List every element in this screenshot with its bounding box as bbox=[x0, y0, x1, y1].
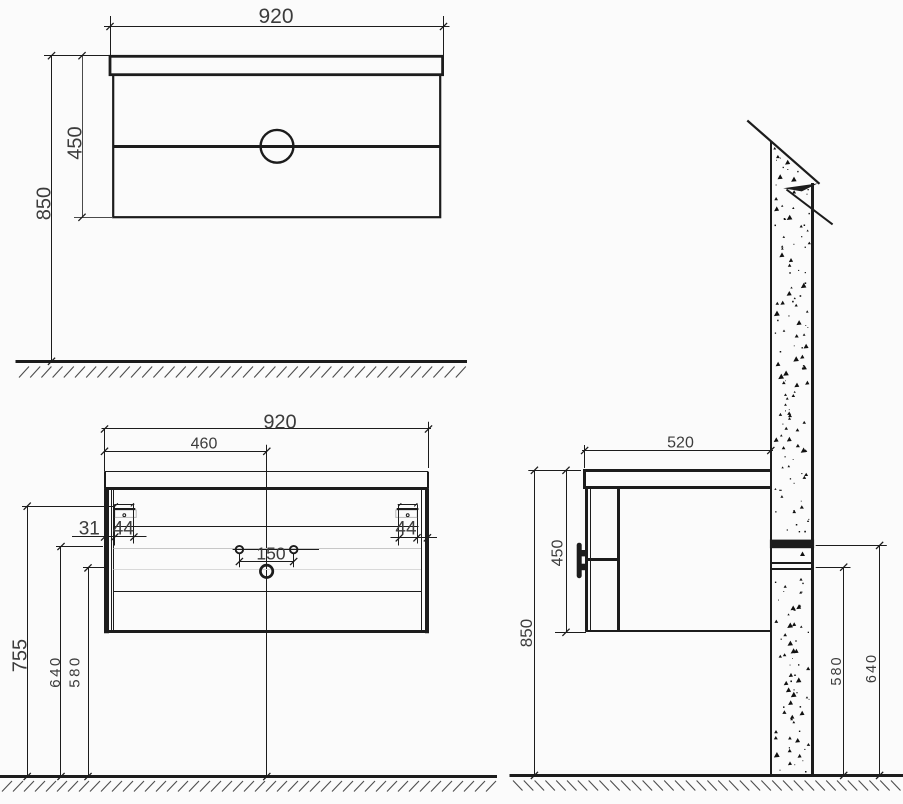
svg-text:450: 450 bbox=[65, 126, 87, 159]
svg-text:580: 580 bbox=[66, 655, 83, 688]
svg-text:520: 520 bbox=[667, 435, 694, 452]
svg-text:44: 44 bbox=[395, 519, 417, 540]
svg-text:44: 44 bbox=[113, 519, 135, 540]
svg-text:640: 640 bbox=[47, 655, 64, 688]
svg-text:580: 580 bbox=[829, 655, 845, 685]
svg-text:31: 31 bbox=[79, 519, 100, 540]
svg-text:450: 450 bbox=[550, 540, 567, 567]
svg-text:850: 850 bbox=[33, 187, 55, 220]
svg-text:755: 755 bbox=[9, 639, 31, 672]
svg-text:150: 150 bbox=[256, 544, 285, 564]
svg-text:640: 640 bbox=[864, 653, 880, 683]
svg-text:920: 920 bbox=[258, 5, 293, 28]
svg-text:850: 850 bbox=[517, 619, 536, 647]
svg-text:920: 920 bbox=[263, 412, 296, 434]
svg-text:460: 460 bbox=[191, 436, 218, 453]
